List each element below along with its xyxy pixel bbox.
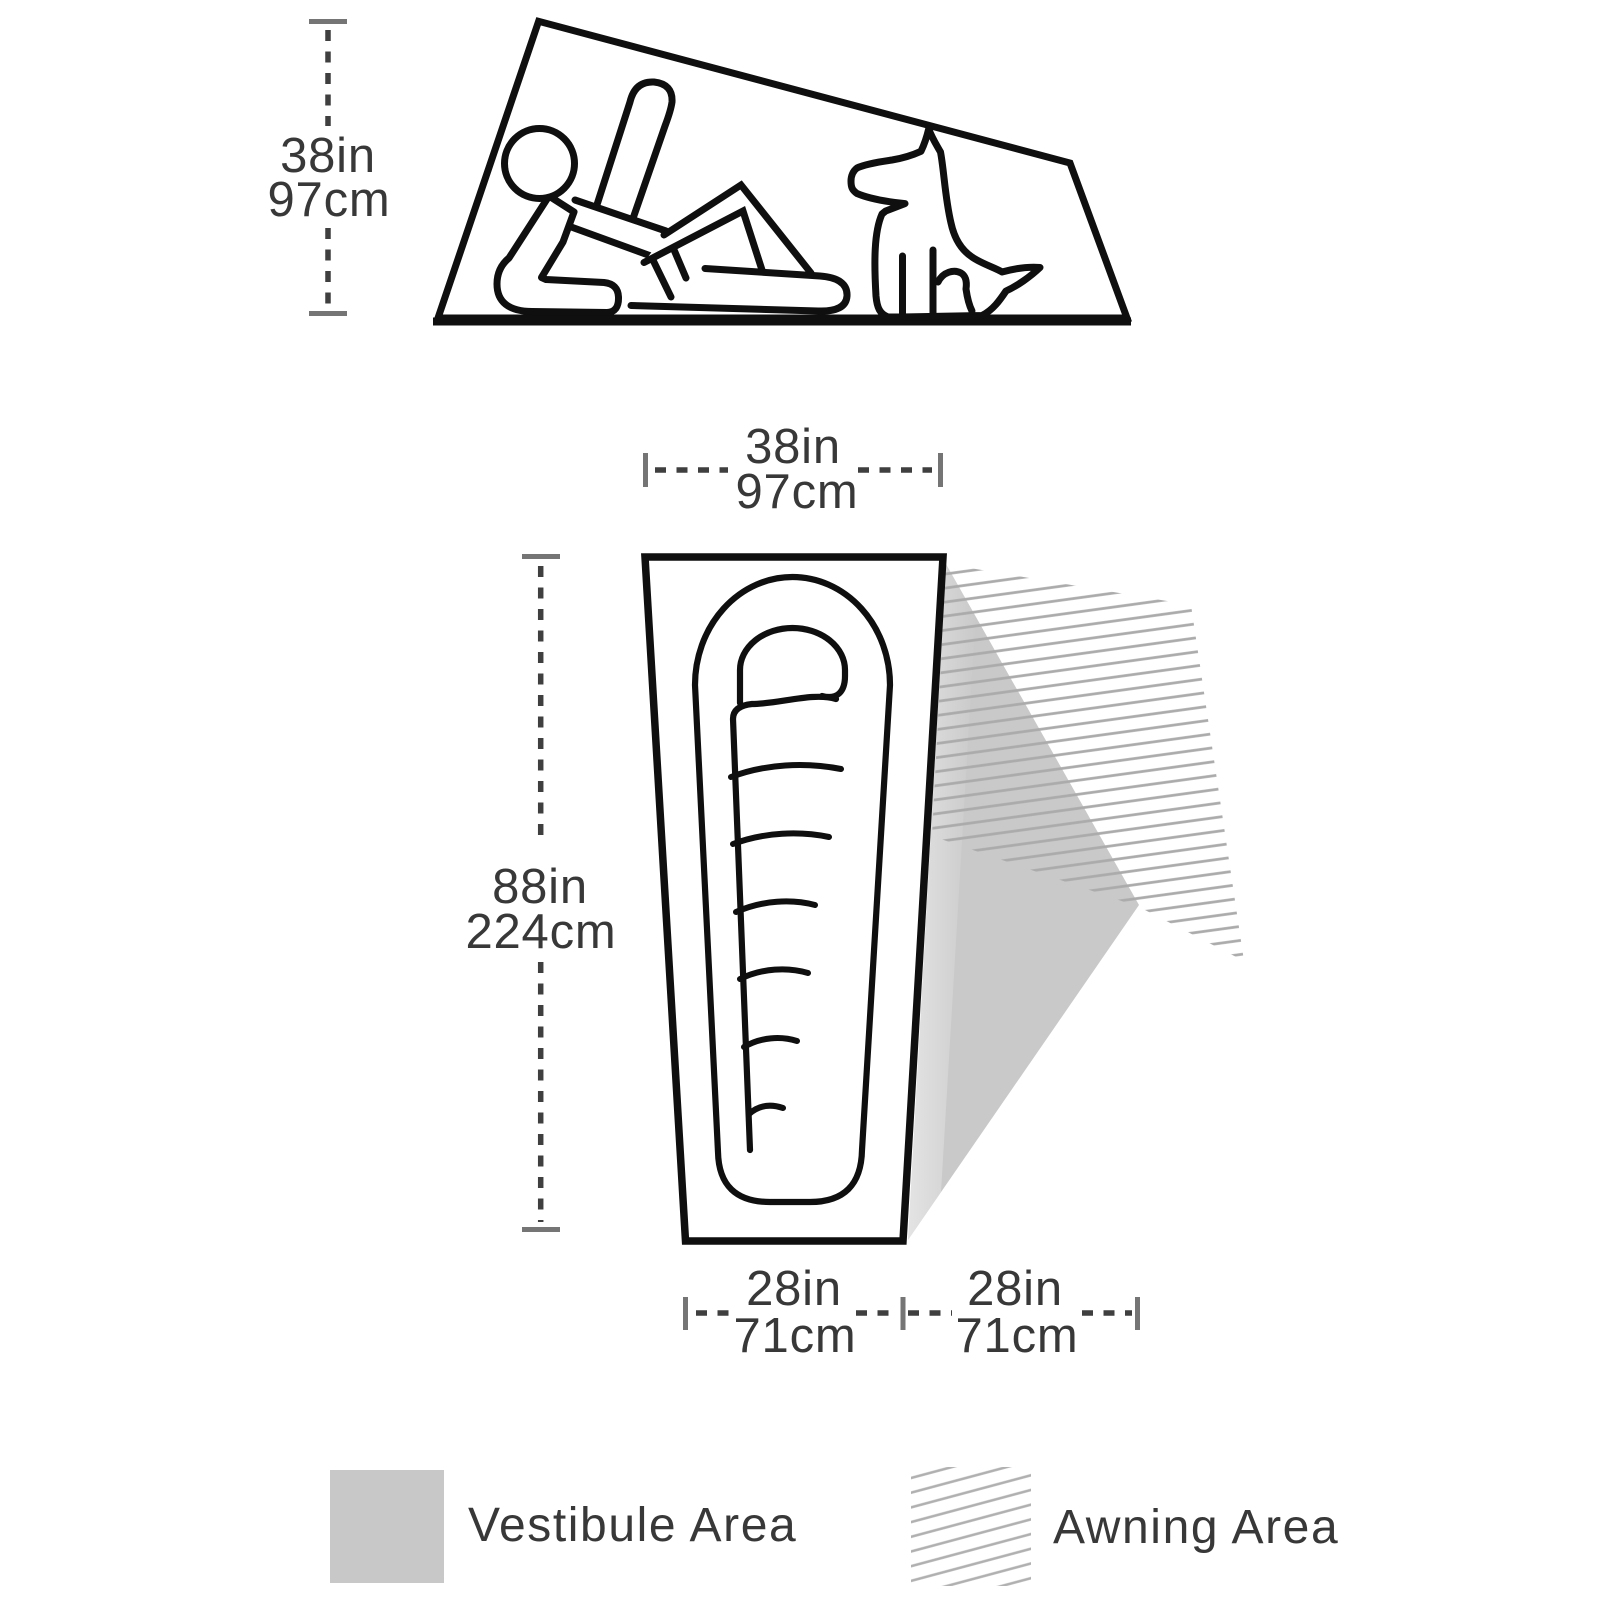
svg-text:Vestibule Area: Vestibule Area xyxy=(468,1499,797,1552)
svg-text:28in: 28in xyxy=(746,1262,842,1316)
svg-text:28in: 28in xyxy=(967,1262,1063,1316)
svg-text:71cm: 71cm xyxy=(733,1309,856,1363)
svg-text:Awning Area: Awning Area xyxy=(1053,1501,1339,1554)
svg-text:71cm: 71cm xyxy=(955,1309,1078,1363)
svg-text:97cm: 97cm xyxy=(735,465,858,519)
svg-text:97cm: 97cm xyxy=(267,173,390,227)
svg-text:224cm: 224cm xyxy=(465,905,616,959)
